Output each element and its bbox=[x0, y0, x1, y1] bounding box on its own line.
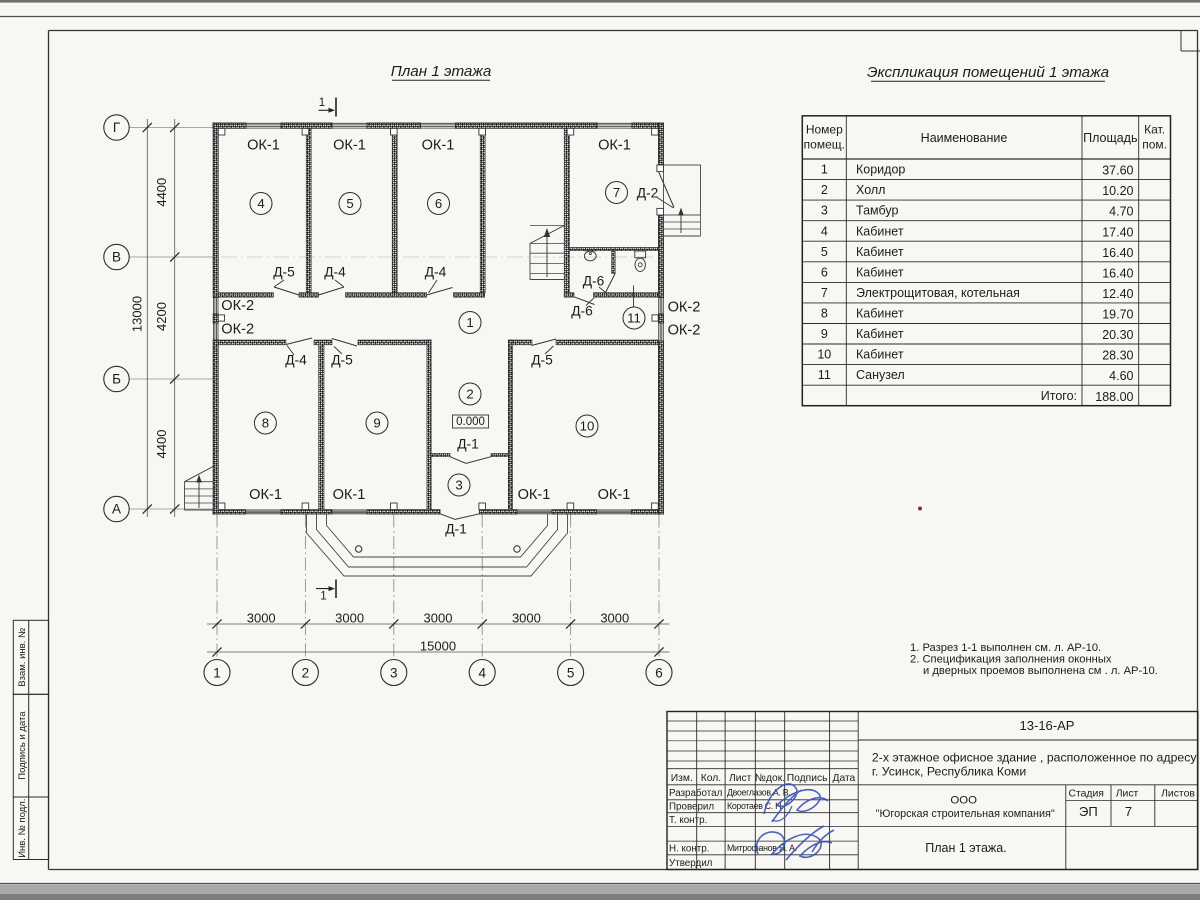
svg-text:В: В bbox=[112, 250, 121, 265]
svg-text:4.60: 4.60 bbox=[1109, 369, 1133, 383]
svg-text:г. Усинск, Республика Коми: г. Усинск, Республика Коми bbox=[872, 765, 1026, 779]
svg-text:пом.: пом. bbox=[1142, 138, 1167, 152]
svg-text:4200: 4200 bbox=[154, 302, 169, 331]
svg-text:Двоеглазов А. В.: Двоеглазов А. В. bbox=[727, 788, 790, 798]
svg-text:А: А bbox=[112, 502, 121, 517]
svg-text:Д-2: Д-2 bbox=[637, 186, 659, 201]
svg-text:Наименование: Наименование bbox=[921, 131, 1008, 145]
svg-text:Кабинет: Кабинет bbox=[856, 265, 904, 279]
svg-text:Кат.: Кат. bbox=[1144, 123, 1165, 137]
svg-text:1: 1 bbox=[466, 315, 473, 330]
svg-text:Д-5: Д-5 bbox=[331, 353, 353, 368]
svg-text:3000: 3000 bbox=[247, 610, 276, 625]
svg-text:3000: 3000 bbox=[600, 610, 629, 625]
svg-text:Коротаев С. Н.: Коротаев С. Н. bbox=[727, 801, 783, 811]
svg-text:10: 10 bbox=[580, 419, 595, 434]
svg-text:Д-6: Д-6 bbox=[571, 304, 593, 319]
svg-text:3000: 3000 bbox=[512, 610, 541, 625]
svg-text:ОК-1: ОК-1 bbox=[247, 138, 280, 154]
svg-text:4: 4 bbox=[478, 665, 486, 680]
svg-text:1: 1 bbox=[320, 591, 326, 603]
svg-text:Номер: Номер bbox=[806, 123, 843, 137]
svg-text:3000: 3000 bbox=[424, 610, 453, 625]
svg-text:3: 3 bbox=[821, 204, 828, 218]
svg-text:План 1 этажа.: План 1 этажа. bbox=[925, 841, 1006, 855]
svg-text:Б: Б bbox=[112, 372, 121, 387]
svg-text:Кабинет: Кабинет bbox=[856, 245, 904, 259]
svg-text:Экспликация помещений 1 этажа: Экспликация помещений 1 этажа bbox=[867, 64, 1109, 81]
svg-text:12.40: 12.40 bbox=[1102, 287, 1133, 301]
svg-text:и дверных проемов выполнена см: и дверных проемов выполнена см . л. АР-1… bbox=[923, 665, 1158, 677]
svg-text:Санузел: Санузел bbox=[856, 368, 905, 382]
svg-text:ОК-2: ОК-2 bbox=[221, 298, 254, 314]
svg-text:помещ.: помещ. bbox=[804, 138, 845, 152]
svg-text:3: 3 bbox=[455, 478, 462, 493]
svg-text:4.70: 4.70 bbox=[1109, 205, 1133, 219]
svg-text:9: 9 bbox=[821, 327, 828, 341]
svg-text:16.40: 16.40 bbox=[1102, 266, 1133, 280]
svg-text:ОК-2: ОК-2 bbox=[668, 300, 701, 316]
svg-text:ЭП: ЭП bbox=[1079, 804, 1098, 819]
svg-text:Кабинет: Кабинет bbox=[856, 327, 904, 341]
svg-text:№док.: №док. bbox=[755, 773, 785, 784]
svg-text:10.20: 10.20 bbox=[1102, 184, 1133, 198]
svg-text:Разработал: Разработал bbox=[669, 788, 723, 799]
svg-text:8: 8 bbox=[821, 307, 828, 321]
svg-text:Холл: Холл bbox=[856, 183, 885, 197]
svg-text:Подпись и дата: Подпись и дата bbox=[17, 711, 28, 780]
svg-text:1: 1 bbox=[213, 665, 221, 680]
svg-text:Кабинет: Кабинет bbox=[856, 307, 904, 321]
svg-text:Тамбур: Тамбур bbox=[856, 204, 898, 218]
svg-text:"Югорская строительная компани: "Югорская строительная компания" bbox=[876, 808, 1055, 820]
svg-text:7: 7 bbox=[1125, 804, 1132, 819]
svg-text:ОК-2: ОК-2 bbox=[668, 323, 701, 339]
svg-text:11: 11 bbox=[818, 368, 831, 382]
svg-text:Взам. инв. №: Взам. инв. № bbox=[17, 628, 28, 687]
svg-text:2. Спецификация заполнения око: 2. Спецификация заполнения оконных bbox=[910, 654, 1112, 666]
svg-text:9: 9 bbox=[373, 416, 380, 431]
svg-text:Д-6: Д-6 bbox=[583, 274, 605, 289]
svg-text:11: 11 bbox=[627, 311, 641, 326]
svg-text:13000: 13000 bbox=[130, 296, 145, 332]
svg-text:ОК-1: ОК-1 bbox=[333, 487, 366, 503]
svg-text:ОК-1: ОК-1 bbox=[598, 487, 631, 503]
svg-text:2: 2 bbox=[821, 183, 828, 197]
svg-text:Проверил: Проверил bbox=[669, 801, 714, 812]
svg-text:ОК-1: ОК-1 bbox=[333, 138, 366, 154]
svg-text:Д-1: Д-1 bbox=[445, 522, 467, 537]
svg-text:ОК-1: ОК-1 bbox=[422, 138, 455, 154]
svg-text:Площадь: Площадь bbox=[1083, 131, 1137, 145]
svg-text:15000: 15000 bbox=[420, 638, 456, 653]
svg-text:5: 5 bbox=[567, 665, 575, 680]
svg-text:4: 4 bbox=[257, 196, 264, 211]
svg-text:4400: 4400 bbox=[154, 430, 169, 459]
svg-text:Кабинет: Кабинет bbox=[856, 348, 904, 362]
svg-text:Инв. № подл.: Инв. № подл. bbox=[17, 799, 28, 858]
svg-text:Д-4: Д-4 bbox=[425, 265, 447, 280]
svg-text:4400: 4400 bbox=[154, 178, 169, 207]
svg-text:Т. контр.: Т. контр. bbox=[669, 815, 707, 826]
svg-text:17.40: 17.40 bbox=[1102, 225, 1133, 239]
svg-text:37.60: 37.60 bbox=[1102, 164, 1133, 178]
svg-text:Утвердил: Утвердил bbox=[669, 858, 713, 869]
svg-text:Д-5: Д-5 bbox=[531, 353, 553, 368]
svg-text:Д-4: Д-4 bbox=[324, 265, 346, 280]
svg-text:6: 6 bbox=[655, 665, 663, 680]
svg-text:ОК-1: ОК-1 bbox=[249, 487, 282, 503]
svg-text:Митрофанов Я. А.: Митрофанов Я. А. bbox=[727, 843, 797, 853]
svg-text:4: 4 bbox=[821, 224, 828, 238]
svg-text:5: 5 bbox=[821, 245, 828, 259]
svg-text:Г: Г bbox=[113, 120, 121, 135]
svg-text:7: 7 bbox=[821, 286, 828, 300]
svg-text:План 1 этажа: План 1 этажа bbox=[391, 63, 492, 80]
svg-text:3000: 3000 bbox=[335, 610, 364, 625]
svg-text:ОК-1: ОК-1 bbox=[518, 487, 551, 503]
svg-text:6: 6 bbox=[435, 196, 442, 211]
svg-text:Кол.: Кол. bbox=[701, 773, 721, 784]
svg-text:ОК-1: ОК-1 bbox=[598, 138, 631, 154]
svg-text:8: 8 bbox=[262, 416, 269, 431]
svg-text:Подпись: Подпись bbox=[787, 773, 828, 784]
svg-text:Н. контр.: Н. контр. bbox=[669, 843, 709, 854]
svg-text:Д-1: Д-1 bbox=[457, 437, 479, 452]
svg-text:ОК-2: ОК-2 bbox=[221, 322, 254, 338]
svg-text:Кабинет: Кабинет bbox=[856, 224, 904, 238]
svg-text:0.000: 0.000 bbox=[456, 416, 485, 428]
svg-text:Коридор: Коридор bbox=[856, 163, 905, 177]
svg-text:Итого:: Итого: bbox=[1041, 389, 1077, 403]
svg-text:20.30: 20.30 bbox=[1102, 328, 1133, 342]
svg-text:Электрощитовая, котельная: Электрощитовая, котельная bbox=[856, 286, 1020, 300]
svg-text:188.00: 188.00 bbox=[1095, 390, 1133, 404]
svg-text:Лист: Лист bbox=[729, 773, 752, 784]
svg-text:1. Разрез 1-1 выполнен см. л.: 1. Разрез 1-1 выполнен см. л. АР-10. bbox=[910, 642, 1101, 654]
svg-text:Дата: Дата bbox=[832, 773, 855, 784]
svg-text:2: 2 bbox=[466, 387, 473, 402]
svg-text:10: 10 bbox=[817, 348, 831, 362]
svg-text:2-х этажное офисное здание , р: 2-х этажное офисное здание , расположенн… bbox=[872, 751, 1200, 765]
svg-text:16.40: 16.40 bbox=[1102, 246, 1133, 260]
svg-text:Изм.: Изм. bbox=[671, 773, 693, 784]
svg-text:19.70: 19.70 bbox=[1102, 308, 1133, 322]
svg-text:ООО: ООО bbox=[950, 795, 977, 807]
svg-text:Д-5: Д-5 bbox=[273, 265, 295, 280]
svg-text:1: 1 bbox=[319, 97, 325, 109]
svg-text:Стадия: Стадия bbox=[1068, 789, 1103, 800]
svg-text:5: 5 bbox=[346, 196, 353, 211]
svg-text:3: 3 bbox=[390, 665, 398, 680]
svg-text:Д-4: Д-4 bbox=[285, 353, 307, 368]
svg-text:Листов: Листов bbox=[1161, 789, 1195, 800]
svg-text:7: 7 bbox=[613, 185, 620, 200]
svg-text:6: 6 bbox=[821, 265, 828, 279]
svg-text:13-16-АР: 13-16-АР bbox=[1020, 718, 1075, 733]
svg-text:2: 2 bbox=[302, 665, 310, 680]
svg-text:28.30: 28.30 bbox=[1102, 349, 1133, 363]
svg-text:1: 1 bbox=[821, 163, 828, 177]
svg-text:Лист: Лист bbox=[1116, 789, 1139, 800]
